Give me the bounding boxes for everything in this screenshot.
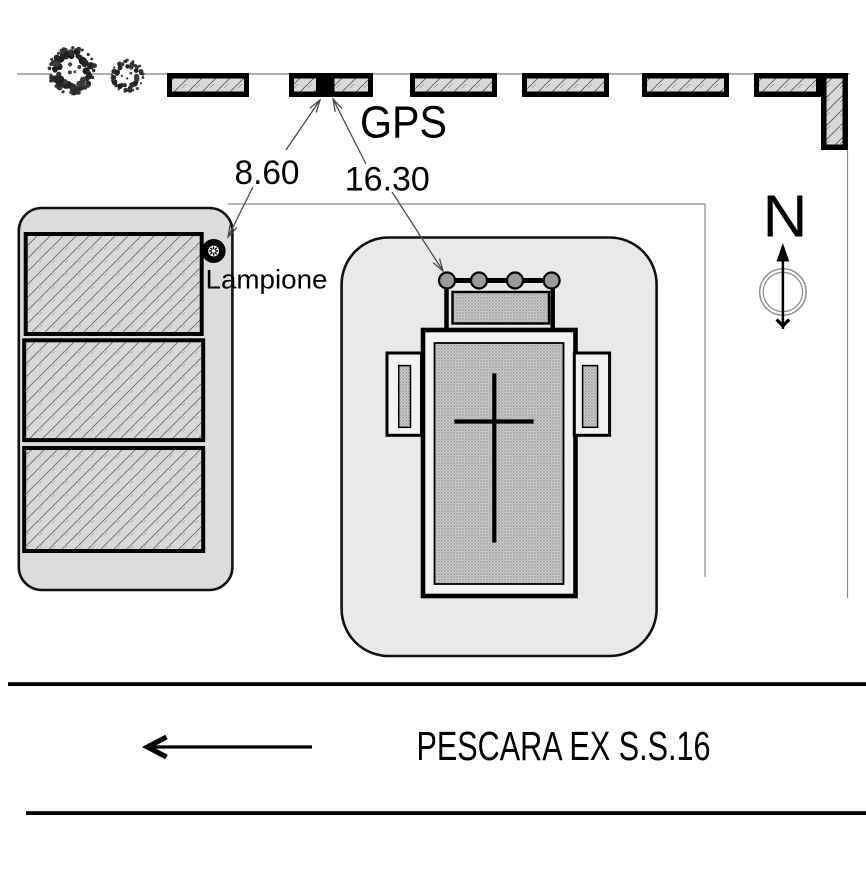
svg-text:GPS: GPS bbox=[360, 97, 447, 148]
svg-text:8.60: 8.60 bbox=[235, 154, 300, 192]
svg-text:Lampione: Lampione bbox=[206, 265, 328, 295]
svg-text:PESCARA EX S.S.16: PESCARA EX S.S.16 bbox=[417, 723, 711, 769]
svg-text:N: N bbox=[763, 184, 808, 250]
svg-text:16.30: 16.30 bbox=[345, 161, 430, 199]
